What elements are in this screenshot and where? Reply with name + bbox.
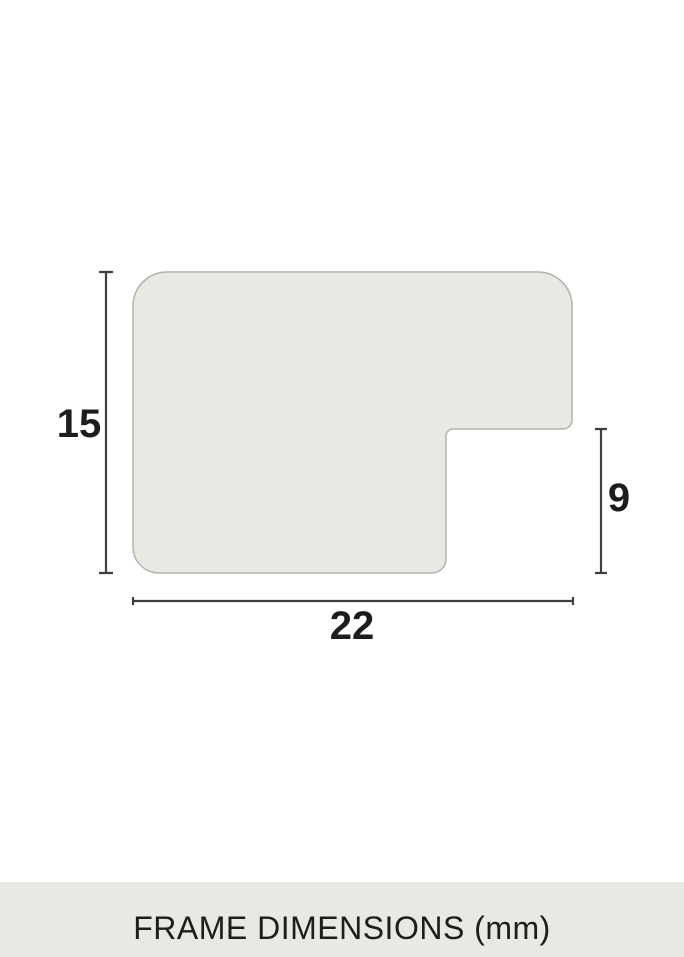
page-root: 15 9 22 FRAME DIMENSIONS (mm) bbox=[0, 0, 684, 957]
height-dimension-label: 15 bbox=[57, 404, 102, 444]
footer-bar: FRAME DIMENSIONS (mm) bbox=[0, 882, 684, 957]
width-dimension-label: 22 bbox=[330, 606, 375, 646]
depth-dimension-line bbox=[595, 429, 607, 573]
footer-label: FRAME DIMENSIONS (mm) bbox=[133, 912, 551, 944]
frame-profile-shape bbox=[133, 272, 572, 573]
frame-profile-diagram bbox=[0, 0, 684, 882]
depth-dimension-label: 9 bbox=[608, 478, 630, 518]
